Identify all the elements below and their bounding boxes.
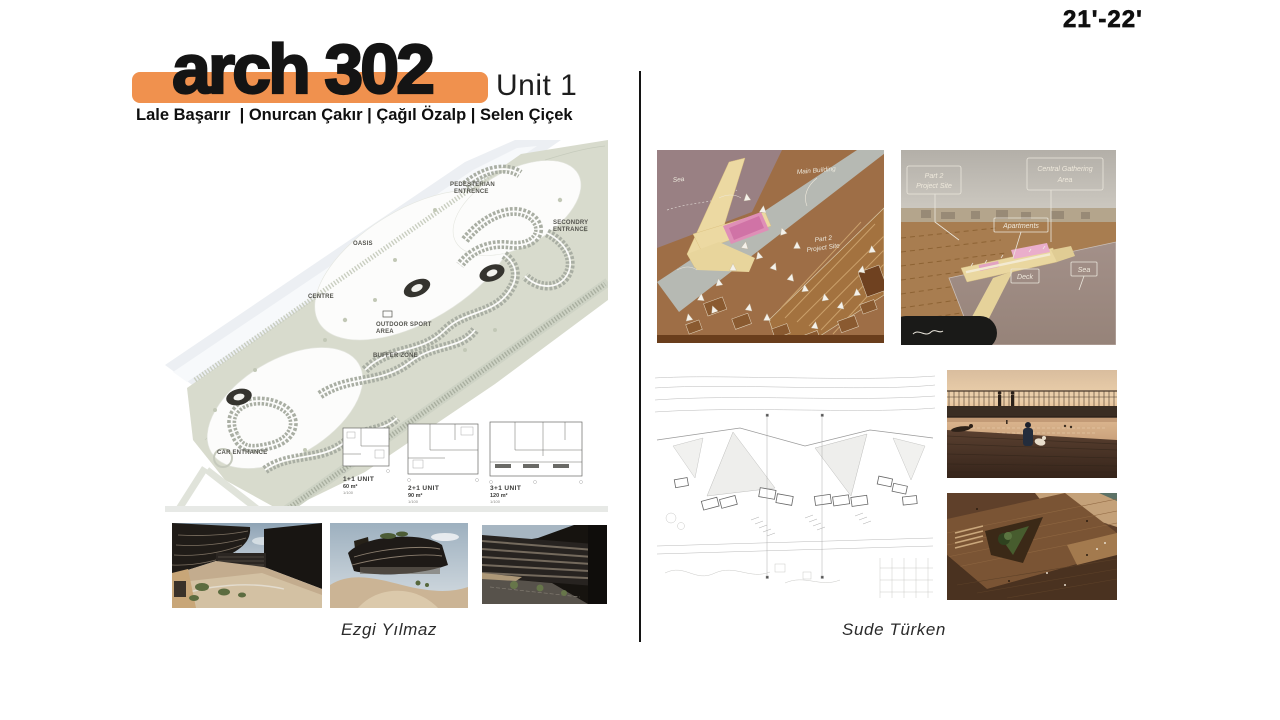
- svg-text:Project Site: Project Site: [916, 183, 952, 190]
- unit-label: Unit 1: [496, 71, 577, 101]
- site-plan-technical-drawing: [655, 368, 935, 600]
- label-car-entrance: CAR ENTRANCE: [217, 450, 267, 456]
- svg-text:ENTRANCE: ENTRANCE: [553, 227, 588, 233]
- render-courtyard: [172, 523, 322, 608]
- academic-year-label: 21'-22': [1063, 6, 1143, 34]
- unit-plan-1: [343, 428, 390, 473]
- annotation-sea: Sea: [673, 176, 686, 184]
- student-name-left: Ezgi Yılmaz: [264, 620, 514, 640]
- caption-overlay-shape: [901, 316, 997, 345]
- instructor-names: Lale Başarır | Onurcan Çakır | Çağıl Öza…: [136, 106, 573, 125]
- svg-text:1/100: 1/100: [490, 499, 501, 504]
- svg-text:ENTRENCE: ENTRENCE: [454, 189, 489, 195]
- label-centre: CENTRE: [308, 294, 334, 300]
- student-name-right: Sude Türken: [769, 620, 1019, 640]
- svg-text:90 m²: 90 m²: [408, 492, 423, 499]
- svg-text:AREA: AREA: [376, 329, 394, 335]
- svg-text:Part 2: Part 2: [925, 173, 944, 180]
- site-plan-drawing: PEDESTERIAN ENTRENCE SECONDRY ENTRANCE O…: [165, 140, 608, 512]
- svg-text:60 m²: 60 m²: [343, 483, 358, 490]
- svg-text:1/100: 1/100: [408, 499, 419, 504]
- svg-text:120 m²: 120 m²: [490, 492, 508, 499]
- unit-plan-2: [408, 424, 479, 482]
- unit-plan-3: [490, 422, 583, 484]
- model-photo-top-view: Sea Main Building Part 2 Project Site: [657, 150, 884, 343]
- label-outdoor-sport: OUTDOOR SPORT: [376, 322, 432, 328]
- render-building: [330, 523, 468, 608]
- presentation-slide: 21'-22' arch 302 Unit 1 Lale Başarır | O…: [0, 0, 1280, 720]
- label-oasis: OASIS: [353, 241, 373, 247]
- svg-text:2+1 UNIT: 2+1 UNIT: [408, 485, 439, 492]
- svg-text:Sea: Sea: [1078, 267, 1091, 274]
- render-aerial-deck: [947, 493, 1117, 600]
- label-pedestrian-entrance: PEDESTERIAN: [450, 182, 495, 188]
- render-facade: [482, 525, 607, 604]
- site-plan-footer-strip: [165, 506, 608, 512]
- course-title: arch 302: [172, 34, 432, 104]
- svg-text:Apartments: Apartments: [1002, 223, 1039, 230]
- svg-text:Area: Area: [1057, 177, 1073, 184]
- column-divider: [639, 71, 641, 642]
- label-buffer-zone: BUFFER ZONE: [373, 353, 418, 359]
- svg-text:Deck: Deck: [1017, 274, 1033, 281]
- svg-text:Central Gathering: Central Gathering: [1037, 166, 1092, 173]
- svg-text:1+1 UNIT: 1+1 UNIT: [343, 476, 374, 483]
- svg-text:1/100: 1/100: [343, 490, 354, 495]
- svg-text:3+1 UNIT: 3+1 UNIT: [490, 485, 521, 492]
- label-secondary-entrance: SECONDRY: [553, 220, 588, 226]
- render-sunset-deck: [947, 370, 1117, 478]
- model-photo-perspective: Part 2 Project Site Central Gathering Ar…: [901, 150, 1116, 345]
